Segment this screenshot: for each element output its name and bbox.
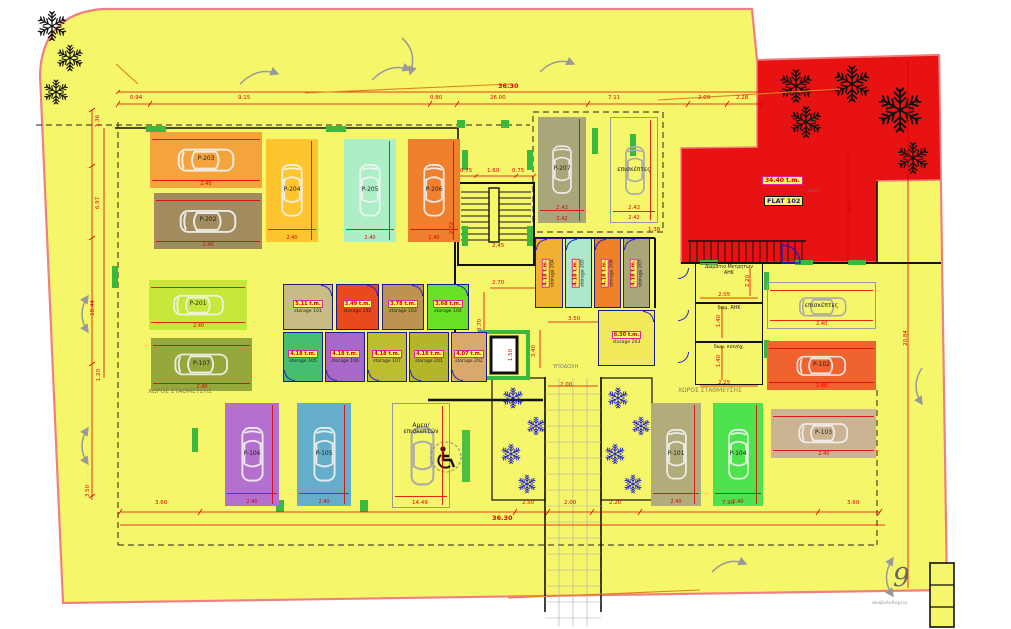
- storage-room: 4.18 t.m.storage 106: [325, 332, 365, 382]
- stall-dim-line: [299, 493, 349, 494]
- parking-label: P-105: [297, 451, 351, 458]
- dimension-text: 2.20: [745, 275, 751, 287]
- stall-dim-line: [152, 139, 260, 140]
- stall-dim: 2.40: [246, 499, 257, 505]
- dimension-text: 18.44: [90, 300, 96, 316]
- stall-dim: 2.40: [318, 499, 329, 505]
- stall-dim-line: [268, 229, 316, 230]
- dimension-text: 7.11: [608, 95, 620, 101]
- dimension-text: 1.60: [487, 168, 499, 174]
- storage-name: storage 206: [610, 259, 615, 287]
- parking-stall: επισκέπτες2.40: [767, 282, 876, 329]
- storage-area-tag: 3.78 t.m.: [388, 300, 417, 308]
- storage-area-tag: 3.49 t.m.: [343, 300, 372, 308]
- dimension-text: 3.50: [568, 316, 580, 322]
- dimension-text: 1.36: [95, 115, 101, 127]
- utility-room: δωμ. κοινόχ.: [695, 342, 763, 385]
- storage-room: 4.18 t.m.storage 207: [623, 238, 650, 308]
- plant-icons: [501, 388, 649, 493]
- parking-stall: P-2022.40: [154, 193, 262, 249]
- sheet-number: 9: [893, 563, 910, 593]
- dimension-text: 14.49: [412, 500, 428, 506]
- stall-dim-line: [773, 416, 874, 417]
- parking-label: P-204: [266, 187, 318, 194]
- storage-area-tag: 6.30 t.m.: [612, 331, 641, 339]
- stall-dim: 2.42: [628, 215, 639, 221]
- parking-stall: P-2032.40: [150, 132, 262, 188]
- door-arc-icon: [678, 268, 689, 279]
- storage-room: 3.78 t.m.storage 103: [382, 284, 424, 330]
- storage-area-tag: 4.18 t.m.: [372, 350, 401, 358]
- storage-name: storage 103: [389, 309, 417, 314]
- storage-room: 6.30 t.m.storage 203: [598, 310, 655, 366]
- parking-label: P-103: [771, 430, 876, 437]
- stall-dim: 2.40: [193, 323, 204, 329]
- storage-name: storage 104: [434, 309, 462, 314]
- storage-name: storage 203: [613, 340, 641, 345]
- parking-stall: P-1052.40: [297, 403, 351, 506]
- parking-stall: P-2042.40: [266, 139, 318, 242]
- storage-area-tag: 4.18 t.m.: [601, 258, 609, 287]
- storage-name: storage 102: [344, 309, 372, 314]
- stall-dim-line: [769, 348, 874, 349]
- zone-reception: ΥΠΟΔΟΧΗ: [553, 364, 578, 370]
- dimension-text: 7.90: [722, 500, 734, 506]
- stall-dim-line: [227, 493, 277, 494]
- storage-room: 4.18 t.m.storage 205: [565, 238, 592, 308]
- dimension-text: 36.30: [498, 82, 519, 90]
- flat-area-tag: 34.40 t.m.: [762, 176, 803, 185]
- door-arc-icon: [367, 285, 378, 296]
- storage-area-tag: 4.18 t.m.: [414, 350, 443, 358]
- dimension-text: 3.60: [155, 500, 167, 506]
- storage-text: 6.30 t.m.storage 203: [612, 331, 641, 345]
- dimension-text: 0.80: [430, 95, 442, 101]
- parking-label: P-106: [225, 451, 279, 458]
- storage-area-tag: 4.18 t.m.: [630, 258, 638, 287]
- stall-dim-line: [770, 290, 873, 291]
- bins-label: σκυβαλοδοχεία: [872, 601, 907, 606]
- storage-room: 3.49 t.m.storage 102: [336, 284, 379, 330]
- parking-label: P-203: [150, 156, 262, 163]
- zone-parking-left: ΧΩΡΟΣ ΣΤΑΘΜΕΥΣΗΣ: [148, 388, 212, 395]
- dimension-text: 2.42: [556, 205, 568, 211]
- dimension-text: 2.20: [609, 500, 621, 506]
- stall-dim-line: [151, 287, 245, 288]
- parking-label: P-104: [713, 451, 763, 458]
- dimension-text: 0.75: [512, 168, 524, 174]
- stall-dim-line: [442, 406, 443, 505]
- storage-area-tag: 4.18 t.m.: [542, 258, 550, 287]
- door-arc-icon: [536, 239, 547, 250]
- dimension-text: 26.00: [490, 95, 506, 101]
- storage-name: storage 101: [294, 309, 322, 314]
- storage-text: 4.18 t.m.storage 206: [601, 258, 615, 287]
- door-arc-icon: [678, 310, 689, 321]
- dimension-text: 9.15: [238, 95, 250, 101]
- dimension-text: 2.09: [698, 95, 710, 101]
- storage-name: storage 202: [455, 359, 483, 364]
- storage-room: 4.18 t.m.storage 206: [594, 238, 621, 308]
- dimension-text: 1.38: [648, 227, 660, 233]
- storage-text: 3.49 t.m.storage 102: [343, 300, 372, 314]
- parking-label: P-207: [538, 166, 586, 173]
- parking-label: επισκέπτες: [768, 303, 875, 310]
- storage-room: 3.68 t.m.storage 104: [427, 284, 469, 330]
- storage-name: storage 107: [373, 359, 401, 364]
- storage-area-tag: 4.18 t.m.: [572, 258, 580, 287]
- dimension-text: 0.75: [460, 168, 472, 174]
- dimension-text: 1.40: [716, 355, 722, 367]
- storage-text: 3.68 t.m.storage 104: [433, 300, 462, 314]
- dimension-text: 3.70: [477, 319, 483, 331]
- stall-dim: 2.40: [816, 321, 827, 327]
- storage-area-tag: 3.68 t.m.: [433, 300, 462, 308]
- storage-text: 5.11 t.m.storage 101: [293, 300, 322, 314]
- storage-text: 4.18 t.m.storage 106: [330, 350, 359, 364]
- parking-stall: P-1032.40: [771, 409, 876, 458]
- storage-text: 4.07 t.m.storage 202: [454, 350, 483, 364]
- stall-dim-line: [395, 496, 447, 497]
- stall-dim: 2.42: [556, 216, 567, 222]
- courtyard-red: [681, 55, 941, 263]
- storage-room: 4.18 t.m.storage 204: [535, 238, 563, 308]
- dimension-text: 20.84: [903, 330, 909, 346]
- dimension-text: 2.28: [736, 95, 748, 101]
- storage-name: storage 204: [551, 259, 556, 287]
- door-arc-icon: [452, 370, 463, 381]
- storage-room: 4.18 t.m.storage 201: [409, 332, 449, 382]
- stall-dim-line: [156, 200, 260, 201]
- storage-name: storage 106: [331, 359, 359, 364]
- stall-dim-line: [153, 345, 250, 346]
- stall-dim: 2.40: [816, 383, 827, 389]
- parking-stall: P-1042.40: [713, 403, 763, 506]
- parking-stall: Αμεα/ επισκεπτών: [392, 403, 450, 508]
- dimension-text: 2.05: [718, 292, 730, 298]
- parking-label: P-107: [151, 361, 252, 368]
- storage-room: 4.18 t.m.storage 105: [283, 332, 323, 382]
- parking-stall: P-1022.40: [767, 341, 876, 390]
- storage-area-tag: 5.11 t.m.: [293, 300, 322, 308]
- door-arc-icon: [678, 352, 689, 363]
- stall-dim-line: [715, 493, 761, 494]
- dimension-text: 0.94: [130, 95, 142, 101]
- door-arc-icon: [643, 311, 654, 322]
- parking-label: P-101: [651, 451, 701, 458]
- stall-dim-line: [613, 211, 655, 212]
- dimension-text: 1.50: [508, 349, 514, 361]
- storage-text: 4.18 t.m.storage 207: [630, 258, 644, 287]
- parking-stall: P-1072.40: [151, 338, 252, 391]
- stall-dim: 2.40: [818, 451, 829, 457]
- stall-dim-line: [346, 229, 394, 230]
- door-arc-icon: [326, 370, 337, 381]
- courtyard-annotation: αυλή: [808, 188, 820, 194]
- storage-name: storage 201: [415, 359, 443, 364]
- parking-stall: P-2052.40: [344, 139, 396, 242]
- stall-dim: 2.40: [670, 499, 681, 505]
- door-arc-icon: [368, 370, 379, 381]
- parking-label: P-205: [344, 187, 396, 194]
- storage-text: 4.18 t.m.storage 107: [372, 350, 401, 364]
- zone-parking-right: ΧΩΡΟΣ ΣΤΑΘΜΕΥΣΗΣ: [678, 387, 742, 394]
- dimension-text: 3.60: [847, 500, 859, 506]
- door-arc-icon: [457, 285, 468, 296]
- door-arc-icon: [410, 370, 421, 381]
- door-arc-icon: [412, 285, 423, 296]
- dimension-text: 2.42: [628, 205, 640, 211]
- storage-room: 5.11 t.m.storage 101: [283, 284, 333, 330]
- door-arc-icon: [284, 370, 295, 381]
- dimension-text: 8.59: [848, 199, 854, 211]
- dimension-text: 2.72: [449, 222, 455, 234]
- stall-dim: 2.40: [428, 235, 439, 241]
- parking-label: P-102: [767, 362, 876, 369]
- flat-name-tag: FLAT 102: [764, 196, 803, 206]
- dimension-text: 2.25: [718, 380, 730, 386]
- parking-stall: P-2012.40: [149, 280, 247, 330]
- door-arc-icon: [321, 285, 332, 296]
- stall-dim: 2.40: [364, 235, 375, 241]
- parking-label: επισκέπτες: [611, 167, 657, 174]
- parking-label: P-202: [154, 217, 262, 224]
- dimension-text: 2.00: [564, 500, 576, 506]
- door-arc-icon: [624, 239, 635, 250]
- storage-name: storage 205: [581, 259, 586, 287]
- elevator: [480, 332, 528, 378]
- storage-name: storage 207: [639, 259, 644, 287]
- utility-room: δωμ. ΑΗΚ: [695, 303, 763, 342]
- storage-text: 4.18 t.m.storage 201: [414, 350, 443, 364]
- parking-label: P-206: [408, 187, 460, 194]
- parking-label: Αμεα/ επισκεπτών: [393, 423, 449, 437]
- door-arc-icon: [595, 239, 606, 250]
- storage-text: 3.78 t.m.storage 103: [388, 300, 417, 314]
- wheelchair-icon: [429, 440, 463, 474]
- dimension-text: 1.20: [96, 369, 102, 381]
- floor-plan-canvas: 34.40 t.m. FLAT 102 9 P-2032.40P-2022.40…: [0, 0, 1011, 629]
- parking-label: P-201: [149, 301, 247, 308]
- stall-dim: 2.40: [200, 181, 211, 187]
- storage-room: 4.07 t.m.storage 202: [451, 332, 487, 382]
- storage-text: 4.18 t.m.storage 204: [542, 258, 556, 287]
- parking-stall: P-1012.40: [651, 403, 701, 506]
- door-arc-icon: [566, 239, 577, 250]
- storage-text: 4.18 t.m.storage 205: [572, 258, 586, 287]
- dimension-text: 2.50: [522, 500, 534, 506]
- dimension-text: 1.40: [716, 315, 722, 327]
- dimension-text: 2.70: [492, 280, 504, 286]
- dimension-text: 3.40: [531, 345, 537, 357]
- dimension-text: 2.45: [492, 243, 504, 249]
- storage-area-tag: 4.18 t.m.: [330, 350, 359, 358]
- stall-dim-line: [653, 493, 699, 494]
- stall-dim: 2.40: [286, 235, 297, 241]
- dimension-text: 3.50: [85, 485, 91, 497]
- storage-room: 4.18 t.m.storage 107: [367, 332, 407, 382]
- dimension-text: 6.97: [95, 197, 101, 209]
- dimension-text: 36.30: [492, 514, 513, 522]
- storage-text: 4.18 t.m.storage 105: [288, 350, 317, 364]
- storage-area-tag: 4.07 t.m.: [454, 350, 483, 358]
- courtyard-door-arc: [782, 245, 800, 263]
- dimension-text: 2.00: [560, 382, 572, 388]
- storage-name: storage 105: [289, 359, 317, 364]
- stall-dim: 2.40: [203, 242, 214, 248]
- parking-stall: P-1062.40: [225, 403, 279, 506]
- storage-area-tag: 4.18 t.m.: [288, 350, 317, 358]
